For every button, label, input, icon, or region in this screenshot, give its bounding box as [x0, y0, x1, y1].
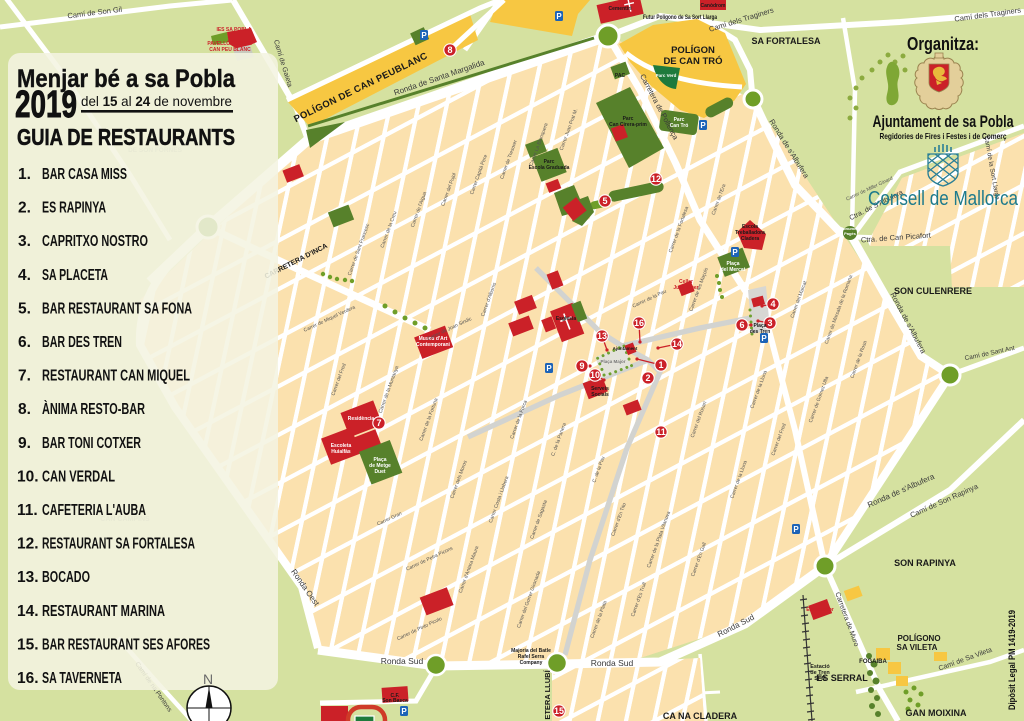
svg-text:Escola Graduada: Escola Graduada [529, 165, 570, 171]
svg-text:P: P [546, 364, 552, 373]
svg-text:Ronda Sud: Ronda Sud [591, 658, 634, 668]
svg-text:SON CULENRERE: SON CULENRERE [894, 286, 972, 296]
svg-text:SON RAPINYA: SON RAPINYA [894, 558, 956, 568]
svg-text:13: 13 [597, 331, 607, 341]
svg-text:7: 7 [376, 418, 381, 428]
svg-text:16.: 16. [17, 670, 39, 687]
svg-text:Ronda Sud: Ronda Sud [381, 656, 424, 666]
svg-text:15.: 15. [17, 636, 39, 653]
svg-text:N: N [203, 671, 213, 687]
svg-text:SA PLACETA: SA PLACETA [42, 267, 108, 284]
svg-text:2: 2 [645, 373, 650, 383]
svg-text:3.: 3. [18, 233, 31, 250]
svg-text:CA NA CLADERA: CA NA CLADERA [663, 711, 738, 721]
svg-text:9: 9 [579, 361, 584, 371]
svg-text:ES RAPINYA: ES RAPINYA [42, 200, 106, 217]
svg-text:Son Basca: Son Basca [382, 698, 408, 704]
svg-text:8: 8 [447, 45, 452, 55]
svg-text:FOGAIBA: FOGAIBA [859, 659, 887, 665]
svg-text:CAPRITXO NOSTRO: CAPRITXO NOSTRO [42, 233, 148, 250]
svg-text:P: P [421, 31, 427, 40]
svg-text:Escorxador: Escorxador [806, 607, 834, 613]
svg-text:14.: 14. [17, 603, 39, 620]
svg-text:16: 16 [634, 318, 644, 328]
svg-text:GUIA DE RESTAURANTS: GUIA DE RESTAURANTS [17, 124, 235, 150]
svg-text:GAN MOIXINA: GAN MOIXINA [905, 708, 967, 718]
svg-text:Plaça Major: Plaça Major [600, 359, 625, 364]
svg-text:P: P [401, 707, 407, 716]
svg-text:CAN PEU BLANC: CAN PEU BLANC [209, 47, 251, 53]
svg-text:8.: 8. [18, 401, 31, 418]
svg-text:10.: 10. [17, 468, 39, 485]
svg-text:7.: 7. [18, 368, 31, 385]
svg-text:PAVELLÓ COBERT: PAVELLÓ COBERT [207, 39, 252, 47]
svg-text:RESTAURANT MARINA: RESTAURANT MARINA [42, 603, 165, 620]
svg-text:6.: 6. [18, 334, 31, 351]
svg-text:10: 10 [590, 370, 600, 380]
svg-text:P: P [793, 525, 799, 534]
svg-text:SA TAVERNETA: SA TAVERNETA [42, 670, 122, 687]
svg-text:Organitza:: Organitza: [907, 34, 979, 54]
svg-text:BAR RESTAURANT SES AFORES: BAR RESTAURANT SES AFORES [42, 636, 210, 653]
svg-text:RESTAURANT SA FORTALESA: RESTAURANT SA FORTALESA [42, 536, 195, 553]
svg-text:4: 4 [770, 299, 775, 309]
svg-text:DE CAN TRÓ: DE CAN TRÓ [663, 55, 722, 67]
svg-text:Socials: Socials [591, 392, 609, 398]
svg-text:1.: 1. [18, 166, 31, 183]
svg-text:Duet: Duet [374, 469, 385, 475]
svg-text:POLÍGON: POLÍGON [671, 45, 715, 56]
svg-text:Dipòsit Legal PM 1419-2019: Dipòsit Legal PM 1419-2019 [1007, 610, 1018, 710]
svg-text:11: 11 [656, 427, 666, 437]
svg-text:1: 1 [658, 360, 663, 370]
svg-text:Ajuntament de sa Pobla: Ajuntament de sa Pobla [873, 112, 1014, 131]
svg-text:BAR DES TREN: BAR DES TREN [42, 334, 122, 351]
svg-text:del Mercat: del Mercat [721, 267, 746, 273]
svg-text:2.: 2. [18, 200, 31, 217]
svg-text:BAR RESTAURANT SA FONA: BAR RESTAURANT SA FONA [42, 300, 192, 317]
svg-text:15: 15 [554, 706, 564, 716]
svg-text:6: 6 [739, 320, 744, 330]
svg-text:12.: 12. [17, 536, 39, 553]
svg-text:ÀNIMA RESTO-BAR: ÀNIMA RESTO-BAR [42, 401, 145, 418]
svg-text:Ajuntament: Ajuntament [613, 346, 638, 351]
svg-text:Cladera: Cladera [741, 236, 760, 242]
svg-text:Futur Polígono de Sa Sort Llar: Futur Polígono de Sa Sort Llarga [643, 14, 717, 21]
svg-text:2019: 2019 [15, 84, 77, 126]
svg-text:11.: 11. [17, 502, 38, 519]
svg-text:P: P [732, 248, 738, 257]
svg-text:P: P [700, 121, 706, 130]
svg-text:CAN VERDAL: CAN VERDAL [42, 468, 115, 485]
svg-text:4.: 4. [18, 267, 31, 284]
svg-text:9.: 9. [18, 435, 31, 452]
svg-text:Contemporani: Contemporani [416, 342, 451, 348]
svg-text:SA FORTALESA: SA FORTALESA [752, 36, 821, 46]
svg-text:Huialfàs: Huialfàs [331, 449, 351, 455]
svg-text:BAR TONI COTXER: BAR TONI COTXER [42, 435, 141, 452]
svg-text:Can Cirera-prim: Can Cirera-prim [609, 122, 647, 128]
svg-text:ETERA LLUBÍ: ETERA LLUBÍ [543, 669, 552, 719]
svg-text:Pagès: Pagès [844, 231, 857, 236]
svg-text:Consell de Mallorca: Consell de Mallorca [868, 188, 1019, 210]
svg-text:Església: Església [556, 316, 577, 322]
svg-text:Parc Verd: Parc Verd [656, 73, 677, 78]
svg-text:P: P [556, 12, 562, 21]
svg-text:Regidories de Fires i Festes i: Regidories de Fires i Festes i de Comerç [880, 131, 1007, 141]
svg-text:SFM: SFM [814, 676, 826, 682]
svg-text:PAC: PAC [615, 73, 626, 79]
svg-text:Canòdrom: Canòdrom [701, 3, 727, 9]
svg-text:POLÍGONO: POLÍGONO [897, 634, 940, 643]
svg-text:BAR CASA MISS: BAR CASA MISS [42, 166, 127, 183]
svg-text:des Tren: des Tren [750, 329, 771, 335]
svg-text:3: 3 [767, 318, 772, 328]
svg-text:14: 14 [672, 339, 682, 349]
svg-text:P: P [761, 334, 767, 343]
svg-text:5.: 5. [18, 300, 31, 317]
svg-text:Company: Company [520, 660, 543, 666]
svg-text:12: 12 [651, 174, 661, 184]
svg-text:SA VILETA: SA VILETA [897, 643, 938, 652]
svg-text:CAFETERIA L'AUBA: CAFETERIA L'AUBA [42, 502, 146, 519]
svg-text:RESTAURANT CAN MIQUEL: RESTAURANT CAN MIQUEL [42, 368, 190, 385]
svg-text:BOCADO: BOCADO [42, 569, 90, 586]
svg-text:Can Tró: Can Tró [670, 123, 689, 129]
svg-text:5: 5 [602, 196, 607, 206]
svg-text:Residència: Residència [348, 416, 375, 422]
svg-text:Cementiri: Cementiri [608, 6, 632, 12]
svg-text:del 15 al 24 de novembre: del 15 al 24 de novembre [81, 93, 232, 109]
svg-text:IES SA POBLA: IES SA POBLA [216, 27, 251, 33]
svg-text:13.: 13. [17, 569, 39, 586]
